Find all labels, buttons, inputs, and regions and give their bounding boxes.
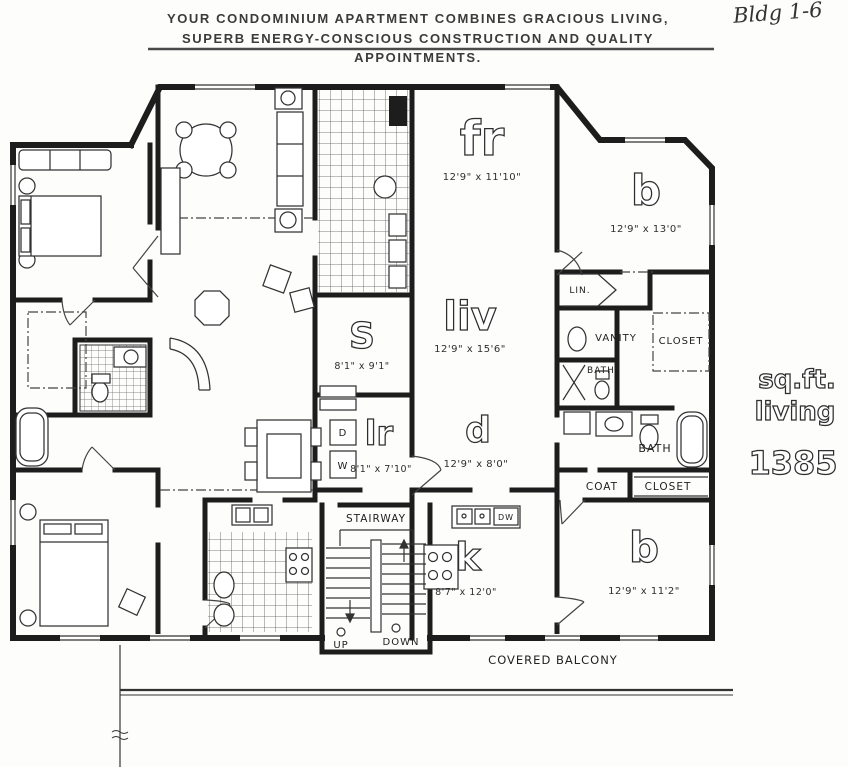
chair [263,265,291,293]
room-label-laundry: lr [365,414,394,454]
newel-post [392,624,400,632]
floor-plan-canvas: fr 12'9" x 11'10" b 12'9" x 13'0" liv 12… [0,0,848,767]
chair [220,162,236,178]
scanned-floorplan-page: { "header": { "line1": "YOUR CONDOMINIUM… [0,0,848,767]
balcony [112,645,733,767]
room-dims-bedroom-bottom: 12'9" x 11'2" [608,586,680,597]
pillow [75,524,102,534]
sofa [277,112,303,206]
side-table [20,504,36,520]
label-dryer: D [339,428,348,439]
toilet [595,381,609,399]
chair [290,288,314,312]
room-label-dining: d [465,410,491,451]
chair [176,122,192,138]
chair [245,462,257,480]
chair [245,428,257,446]
room-label-storage: S [349,316,375,357]
sqft-value: 1385 [748,444,837,482]
stove [286,548,312,582]
label-vanity: VANITY [595,333,637,344]
shower [564,412,590,434]
dining-table [257,420,311,492]
sink [568,327,586,351]
shelf [389,266,406,288]
chair [311,428,321,446]
stair-stringer [371,540,381,632]
label-stairway: STAIRWAY [346,513,406,525]
sqft-summary: sq.ft. living 1385 [748,365,837,482]
newel-post [337,628,345,636]
label-up: UP [333,640,348,651]
label-bath-lower: BATH [638,442,671,455]
label-down: DOWN [383,637,420,648]
toilet [92,382,108,402]
room-label-kitchen: k [455,535,481,579]
curved-counter [170,338,210,390]
label-coat: COAT [586,481,618,493]
pillow [44,524,71,534]
bed [40,520,108,626]
bath-floor-cross [563,365,585,400]
label-linen: LIN. [569,286,590,296]
sqft-line1: sq.ft. [758,365,836,395]
label-bath-upper: BATH [587,366,615,376]
bedroom-bottomleft-door [82,447,115,470]
room-dims-family-room: 12'9" x 11'10" [443,172,522,183]
octagon-table [195,291,229,325]
side-table [20,610,36,626]
sqft-line2: living [755,397,836,427]
room-dims-living: 12'9" x 15'6" [434,344,506,355]
label-washer: W [338,461,349,472]
room-label-bedroom-bottom: b [629,523,659,572]
room-label-bedroom-top: b [631,166,661,215]
room-label-family-room: fr [460,111,505,167]
sofa [19,150,111,170]
entry-double-door [133,236,158,297]
shelf [389,240,406,262]
pillow [21,228,30,252]
shelf [389,214,406,236]
bathtub [16,408,48,466]
stove [424,545,458,589]
room-dims-kitchen: 8'7" x 12'0" [435,587,497,598]
vanity-counter [596,412,632,436]
room-dims-bedroom-top: 12'9" x 13'0" [610,224,682,235]
chair [214,572,234,598]
planter [374,176,396,198]
chair [119,589,146,616]
pillow [21,200,30,224]
room-label-living: liv [443,294,497,340]
label-dishwasher: DW [498,513,514,522]
label-closet-upper: CLOSET [659,336,704,347]
bedroom-bottom-door [560,500,585,524]
appliance [320,399,356,410]
side-table [19,178,35,194]
cabinet [161,168,180,254]
appliance [320,386,356,397]
chair [220,122,236,138]
kitchen-door [557,597,584,625]
room-dims-storage: 8'1" x 9'1" [334,361,389,372]
chair [311,462,321,480]
chair [214,604,234,626]
dark-doorway [389,96,407,126]
room-dims-dining: 12'9" x 8'0" [444,459,509,470]
room-dims-laundry: 8'1" x 7'10" [350,464,412,475]
label-covered-balcony: COVERED BALCONY [488,653,618,667]
label-closet-lower: CLOSET [645,481,692,493]
